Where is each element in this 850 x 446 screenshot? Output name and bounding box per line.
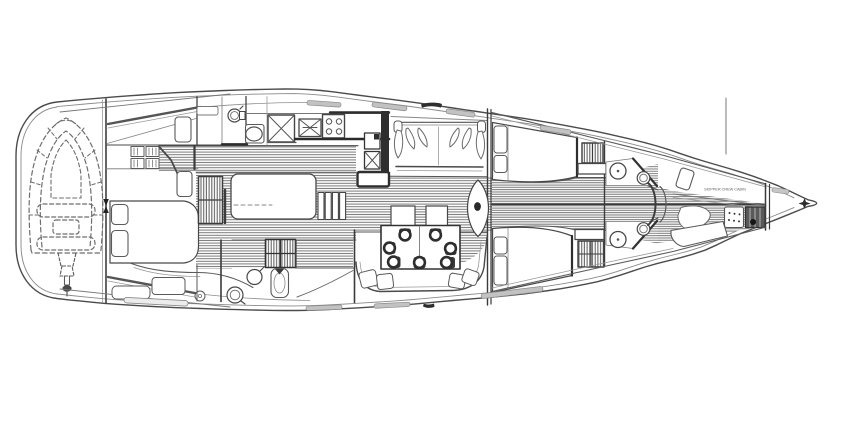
svg-text:SKIPPER CREW CABIN: SKIPPER CREW CABIN [704, 188, 746, 192]
